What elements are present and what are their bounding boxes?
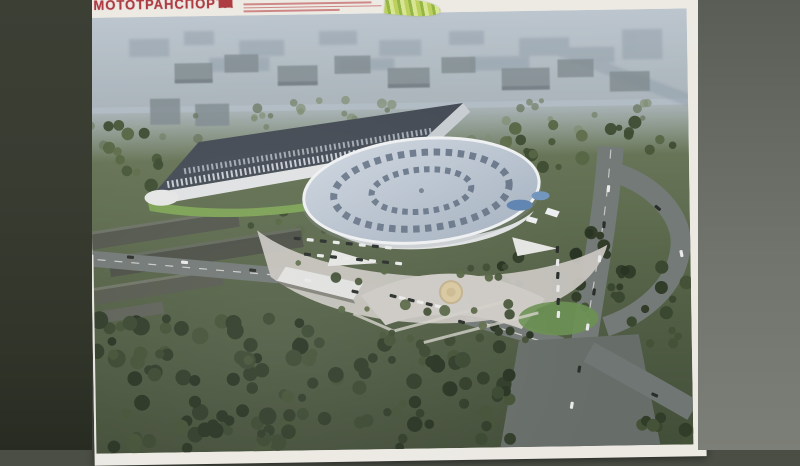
headline-text-cropped: МОТОТРАНСПОРТА <box>93 0 234 13</box>
fine-print-lines <box>243 1 383 14</box>
headline-end-block <box>220 0 232 8</box>
table-surface-left <box>0 0 92 450</box>
fine-print-line <box>244 5 382 9</box>
aerial-rendering <box>89 8 694 453</box>
table-surface-right <box>698 0 800 450</box>
screenshot-root: { "alt_text": "Photograph of a printed p… <box>0 0 800 450</box>
fine-print-line <box>244 9 340 12</box>
printed-page-photo: МОТОТРАНСПОРТА <box>87 0 706 466</box>
